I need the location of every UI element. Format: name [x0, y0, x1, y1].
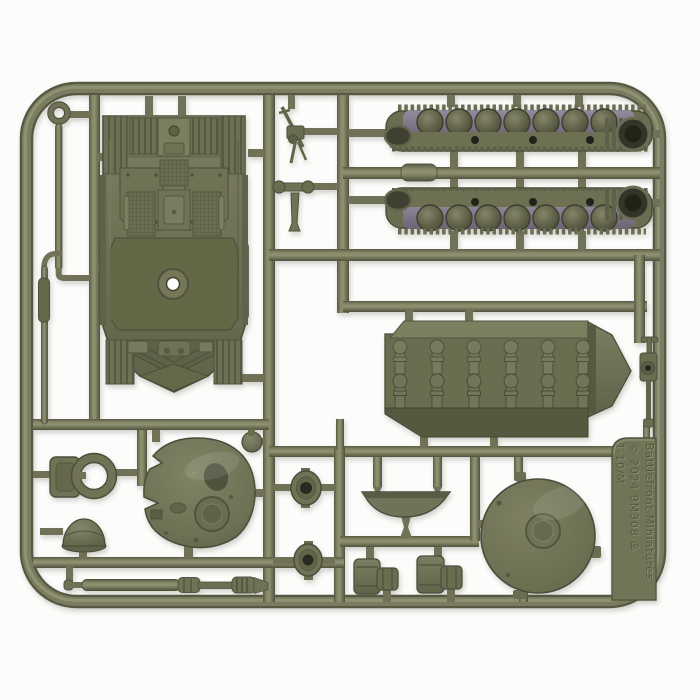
- model-code: T-10/M: [614, 442, 627, 485]
- sprue-photo: Battlefront Miniatures Battlefront Minia…: [0, 0, 700, 700]
- maker-name: Battlefront Miniatures: [643, 443, 656, 580]
- part-fuel-drums-2: [417, 556, 462, 593]
- part-lower-hull: [385, 321, 631, 437]
- part-gun-cradle: [273, 181, 314, 231]
- part-ball-mount: [242, 429, 262, 452]
- runner-mid-right: [269, 446, 617, 457]
- part-track-left: [385, 108, 652, 152]
- runner-mid-vertical: [337, 95, 349, 313]
- maker-text-panel: Battlefront Miniatures Battlefront Minia…: [612, 438, 657, 600]
- part-gun-barrel: [64, 577, 268, 594]
- part-turret-base: [481, 472, 601, 599]
- runner-left-vertical: [89, 95, 100, 425]
- part-track-right: [385, 187, 652, 232]
- copyright-code: © 2024 BM308 ♸: [628, 443, 641, 552]
- part-turret-roof: [144, 438, 255, 548]
- part-turret-bottom-tub: [362, 492, 450, 517]
- runner-between-tracks: [343, 167, 660, 179]
- part-fuel-drums-1: [354, 559, 398, 594]
- part-commander-cupola: [62, 519, 106, 552]
- part-round-hatch-1: [291, 468, 321, 508]
- part-upper-hull: [100, 116, 248, 392]
- part-round-hatch-2: [294, 541, 322, 580]
- part-hatch-ring: [72, 454, 117, 499]
- runner-below-tracks: [269, 249, 660, 261]
- runner-mid-left: [33, 419, 269, 430]
- runner-above-lower-hull: [343, 301, 647, 312]
- part-aa-machine-gun: [279, 107, 306, 163]
- runner-right-vertical: [634, 255, 645, 343]
- runner-center-vertical: [263, 95, 275, 602]
